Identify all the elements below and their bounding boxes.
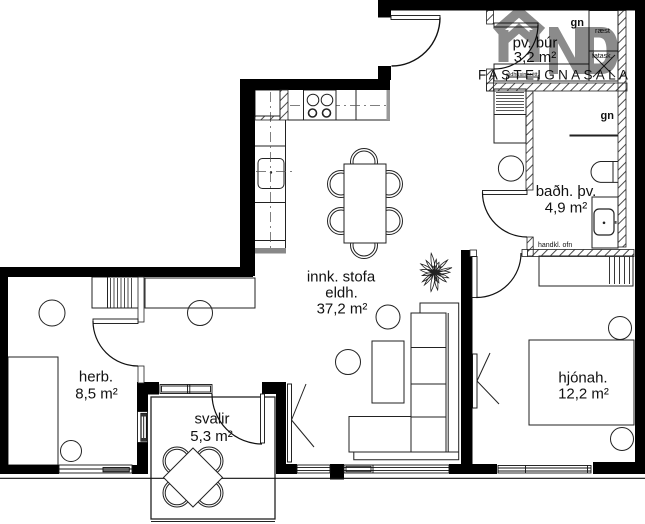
svg-text:12,2 m²: 12,2 m² xyxy=(558,386,609,403)
svg-text:5,3 m²: 5,3 m² xyxy=(190,428,233,445)
svg-text:FASTEIGNASALA: FASTEIGNASALA xyxy=(478,68,631,83)
svg-text:baðh. þv.: baðh. þv. xyxy=(536,183,597,200)
svg-text:eldh.: eldh. xyxy=(325,285,358,302)
svg-text:8,5 m²: 8,5 m² xyxy=(75,386,118,403)
svg-text:svalir: svalir xyxy=(194,411,229,428)
svg-text:37,2 m²: 37,2 m² xyxy=(317,301,368,318)
svg-text:gn: gn xyxy=(601,110,615,122)
svg-text:hjónah.: hjónah. xyxy=(558,370,607,387)
svg-text:4,9 m²: 4,9 m² xyxy=(545,200,588,217)
svg-text:herb.: herb. xyxy=(79,369,113,386)
svg-text:innk. stofa: innk. stofa xyxy=(307,269,376,286)
svg-text:handkl. ofn: handkl. ofn xyxy=(538,242,572,249)
